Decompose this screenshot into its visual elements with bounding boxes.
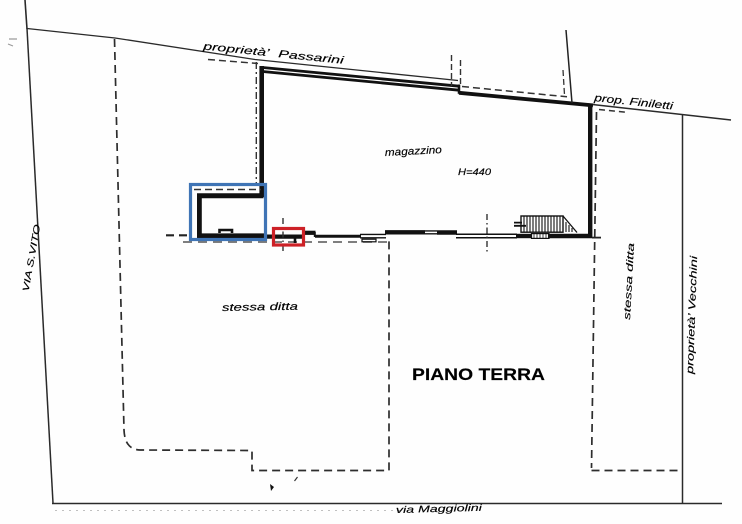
svg-text:H=440: H=440 <box>458 167 492 178</box>
svg-text:stessa ditta: stessa ditta <box>222 301 298 314</box>
svg-text:proprietà’ Vecchini: proprietà’ Vecchini <box>685 255 700 376</box>
svg-text:stessa ditta: stessa ditta <box>622 243 637 320</box>
svg-text:via Maggiolini: via Maggiolini <box>396 503 484 516</box>
svg-text:PIANO TERRA: PIANO TERRA <box>412 366 545 384</box>
svg-text:proprietà’ Passarini: proprietà’ Passarini <box>201 40 345 66</box>
svg-text:magazzino: magazzino <box>385 144 443 159</box>
